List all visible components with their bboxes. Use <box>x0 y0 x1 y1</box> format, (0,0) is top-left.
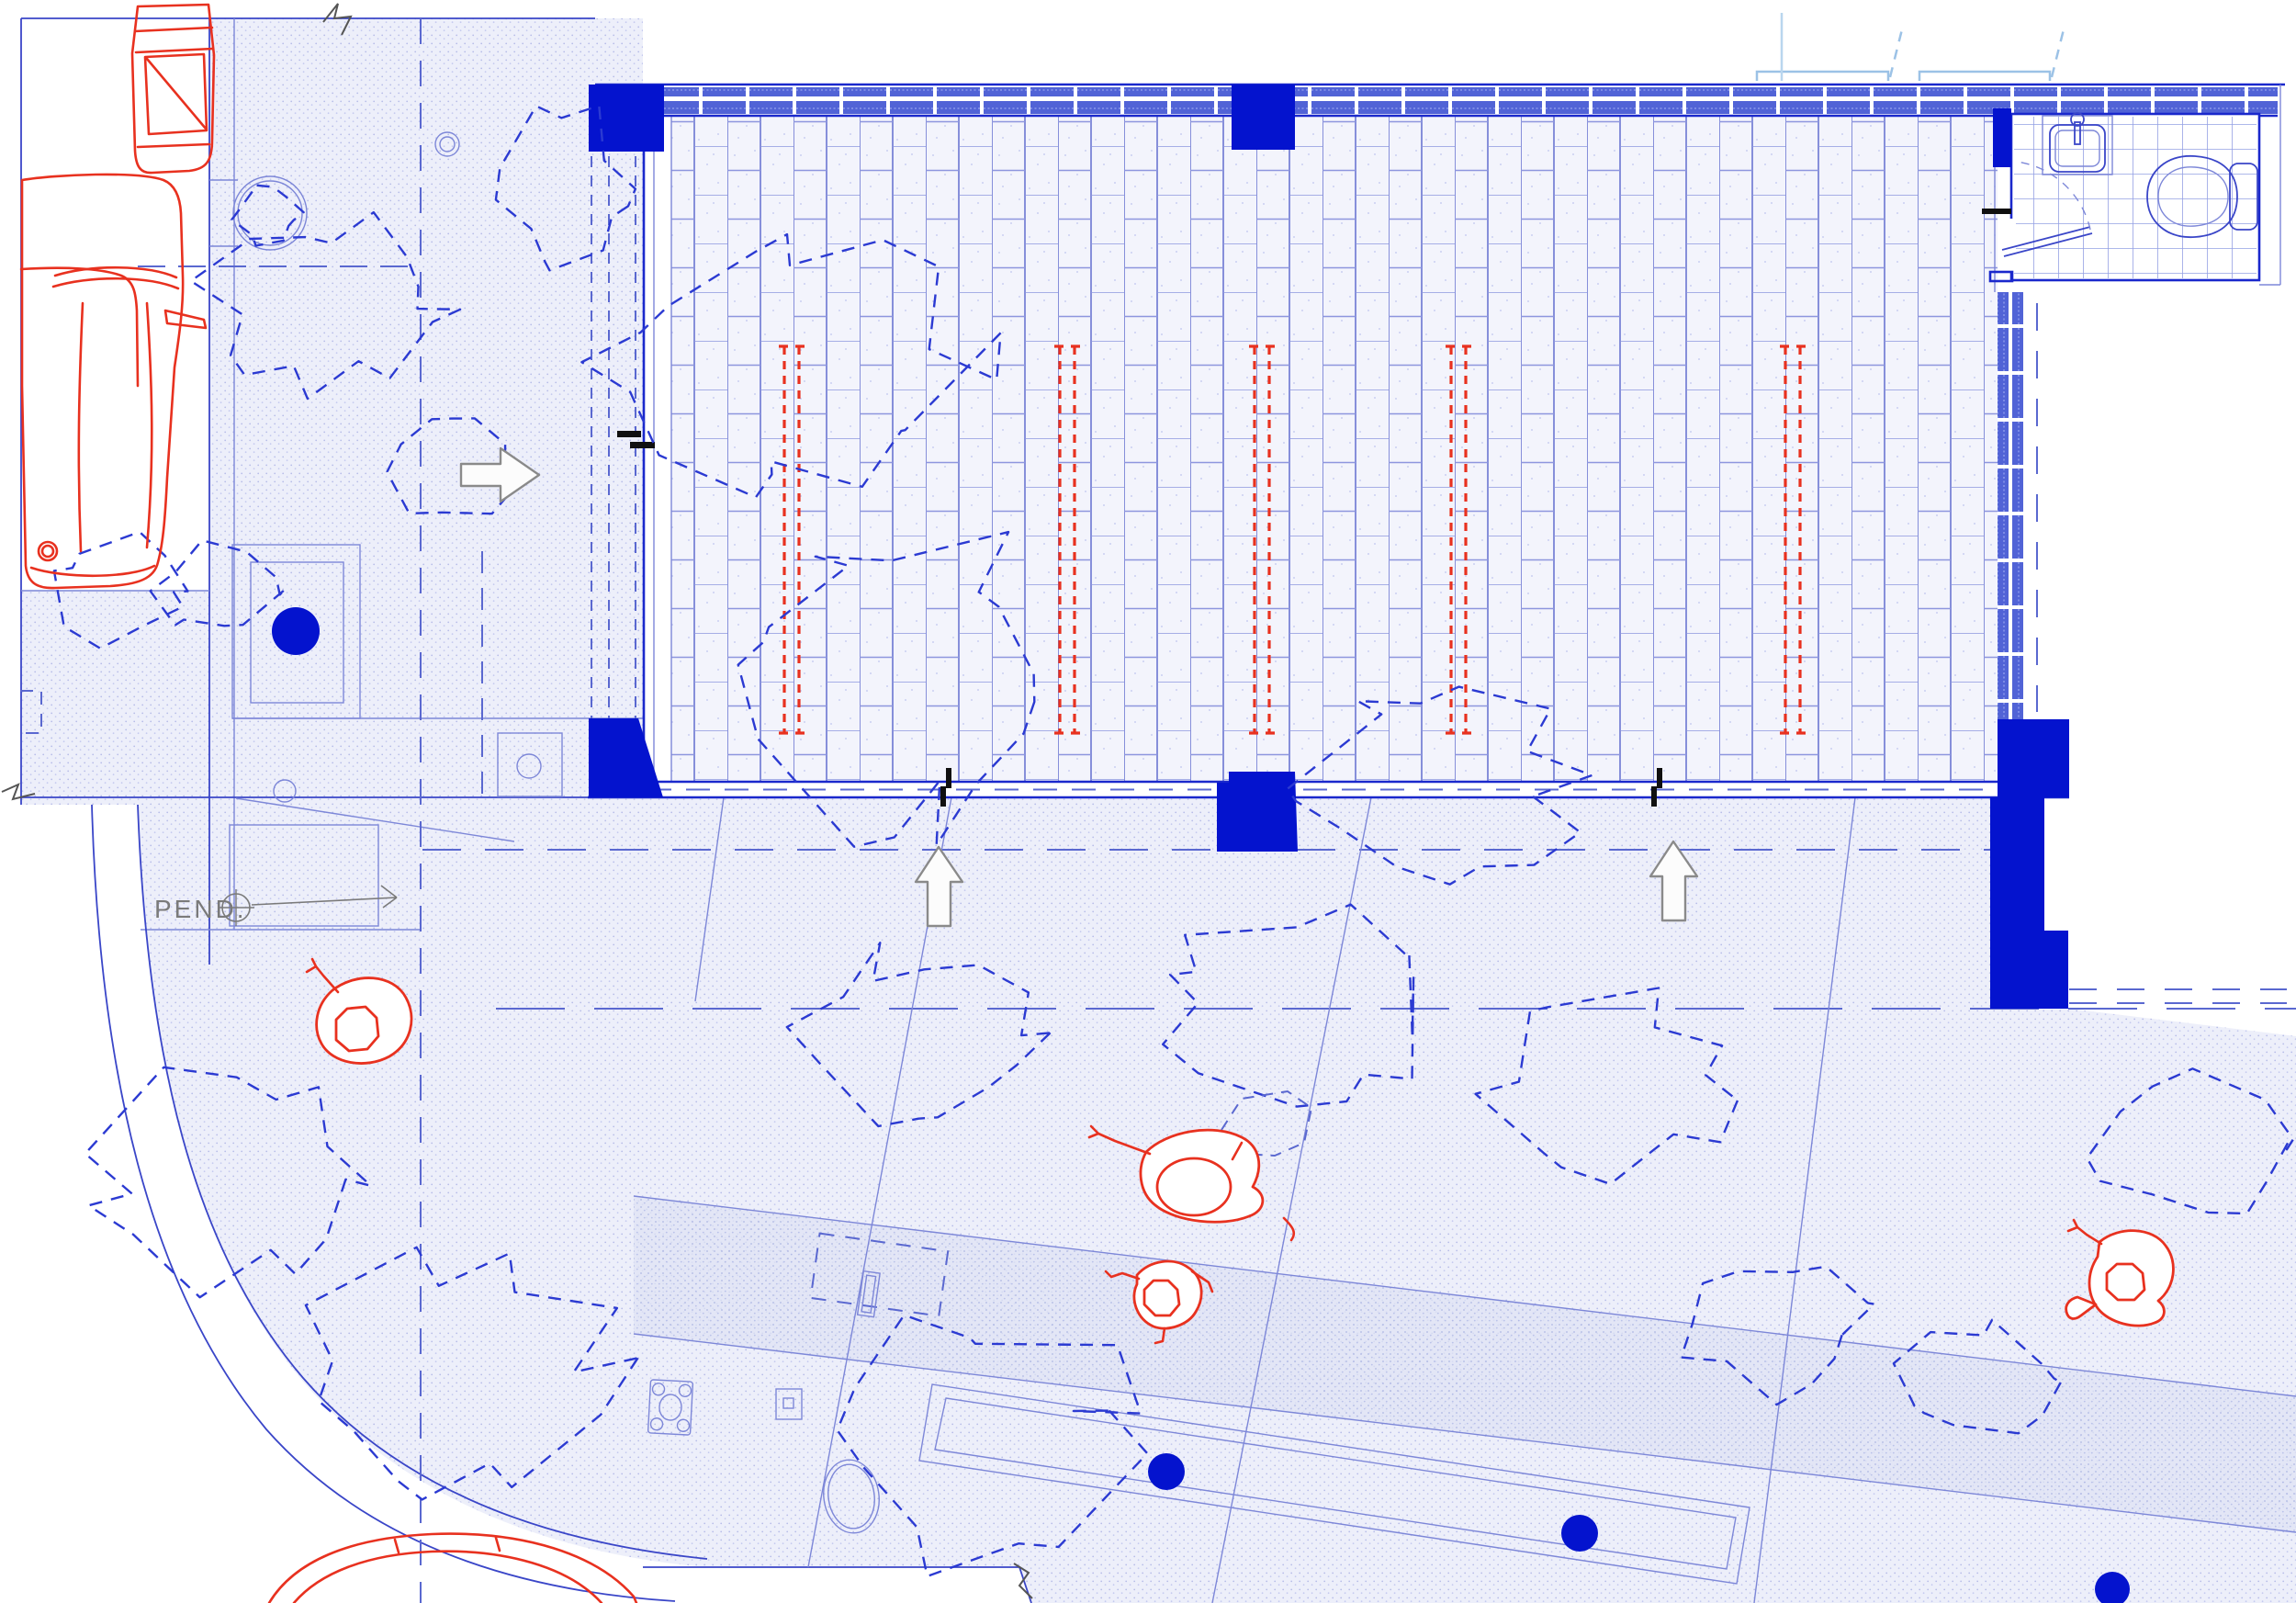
plaza-upper-left <box>209 18 643 797</box>
tile-band-top <box>664 87 2278 114</box>
pend-label: PEND. <box>154 895 247 923</box>
hall-plank-tiles <box>671 116 1998 782</box>
bathroom <box>1982 85 2280 285</box>
car-rear-top-left <box>132 5 214 173</box>
person-head <box>1157 1158 1231 1215</box>
column-top-middle <box>1232 85 1295 150</box>
tile-band-right-wall <box>1998 292 2023 719</box>
planter-dot <box>1148 1453 1185 1490</box>
threshold-marker <box>1982 209 2011 214</box>
side-mirror <box>165 310 206 328</box>
planter-dot <box>272 607 320 655</box>
plot-bottom-boundary <box>643 1567 1031 1603</box>
bathroom-wall-pier <box>1993 108 2011 167</box>
wall-pier-right <box>1990 719 2069 1009</box>
site-plan-page: PEND. <box>0 0 2296 1603</box>
car-sedan-left <box>21 175 206 588</box>
plaza-left-extension <box>20 591 209 805</box>
person-head <box>336 1007 378 1051</box>
site-plan-svg: PEND. <box>0 0 2296 1603</box>
planter-dot <box>1561 1515 1598 1552</box>
person-head <box>1144 1281 1179 1315</box>
person-head <box>2107 1264 2144 1300</box>
roof-canopy-edges <box>1757 13 2065 81</box>
column-bottom-middle <box>1217 772 1298 852</box>
